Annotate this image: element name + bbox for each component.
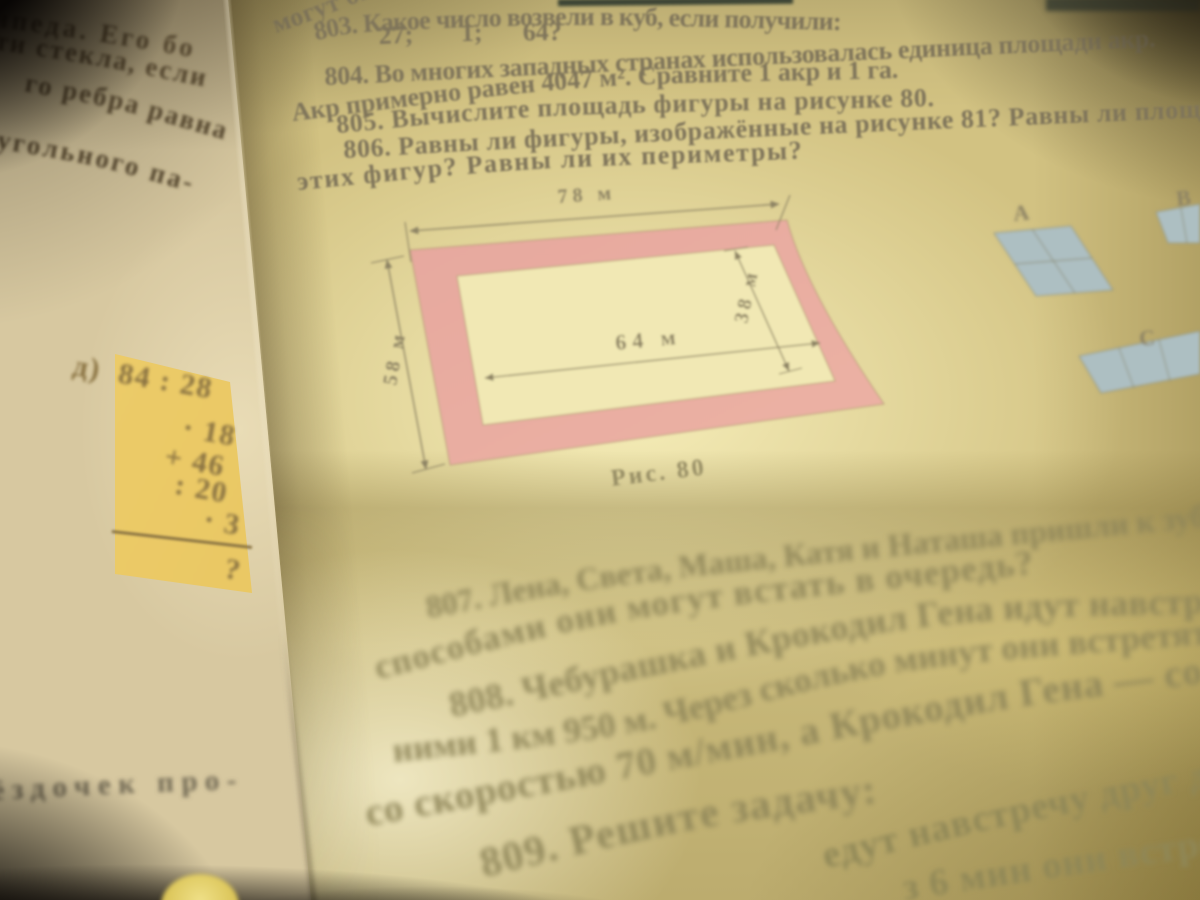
svg-text:С: С	[1138, 324, 1156, 351]
svg-text:78 м: 78 м	[557, 182, 617, 208]
svg-text:А: А	[1012, 199, 1031, 226]
svg-text:58 м: 58 м	[379, 329, 410, 387]
svg-text:Рис. 80: Рис. 80	[610, 454, 709, 492]
svg-text:В: В	[1175, 185, 1193, 211]
